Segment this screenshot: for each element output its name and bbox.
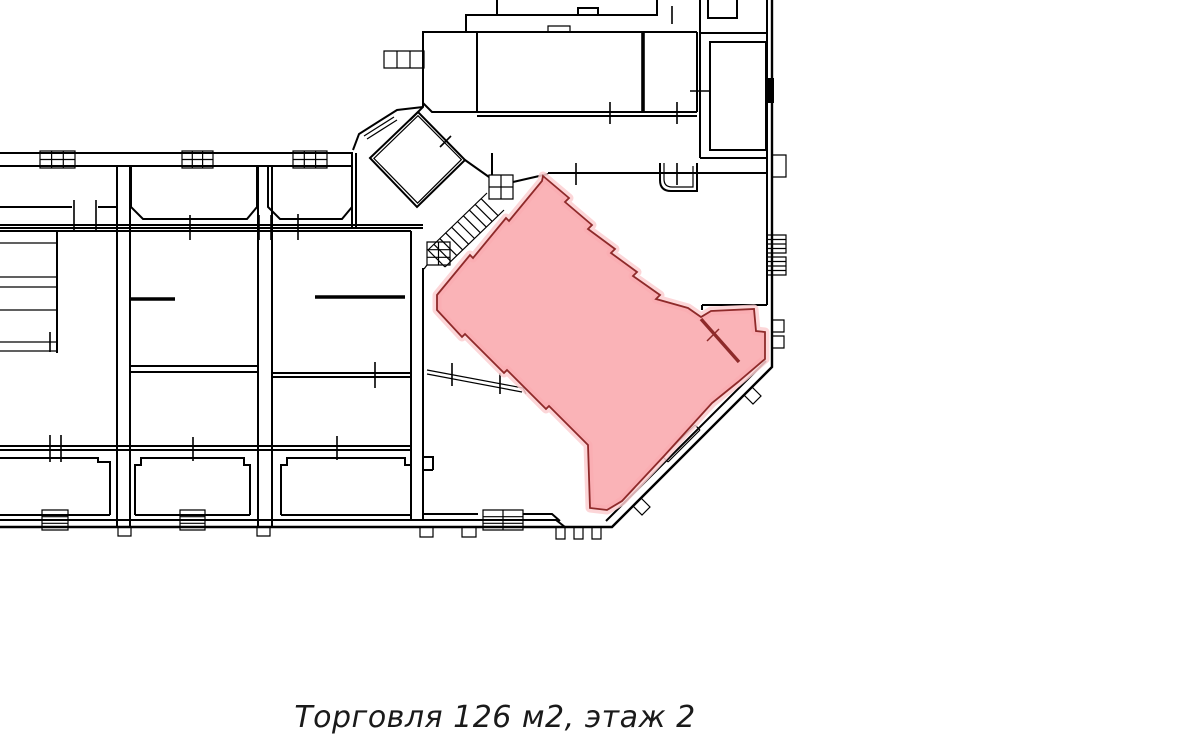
highlighted-unit[interactable] bbox=[437, 176, 765, 510]
highlighted-unit-group bbox=[437, 176, 765, 510]
floor-plan bbox=[0, 0, 1200, 745]
page: { "caption": { "text": "Торговля 126 м2,… bbox=[0, 0, 1200, 745]
plan-caption: Торговля 126 м2, этаж 2 bbox=[0, 700, 990, 735]
vestibule-walls bbox=[353, 107, 548, 207]
